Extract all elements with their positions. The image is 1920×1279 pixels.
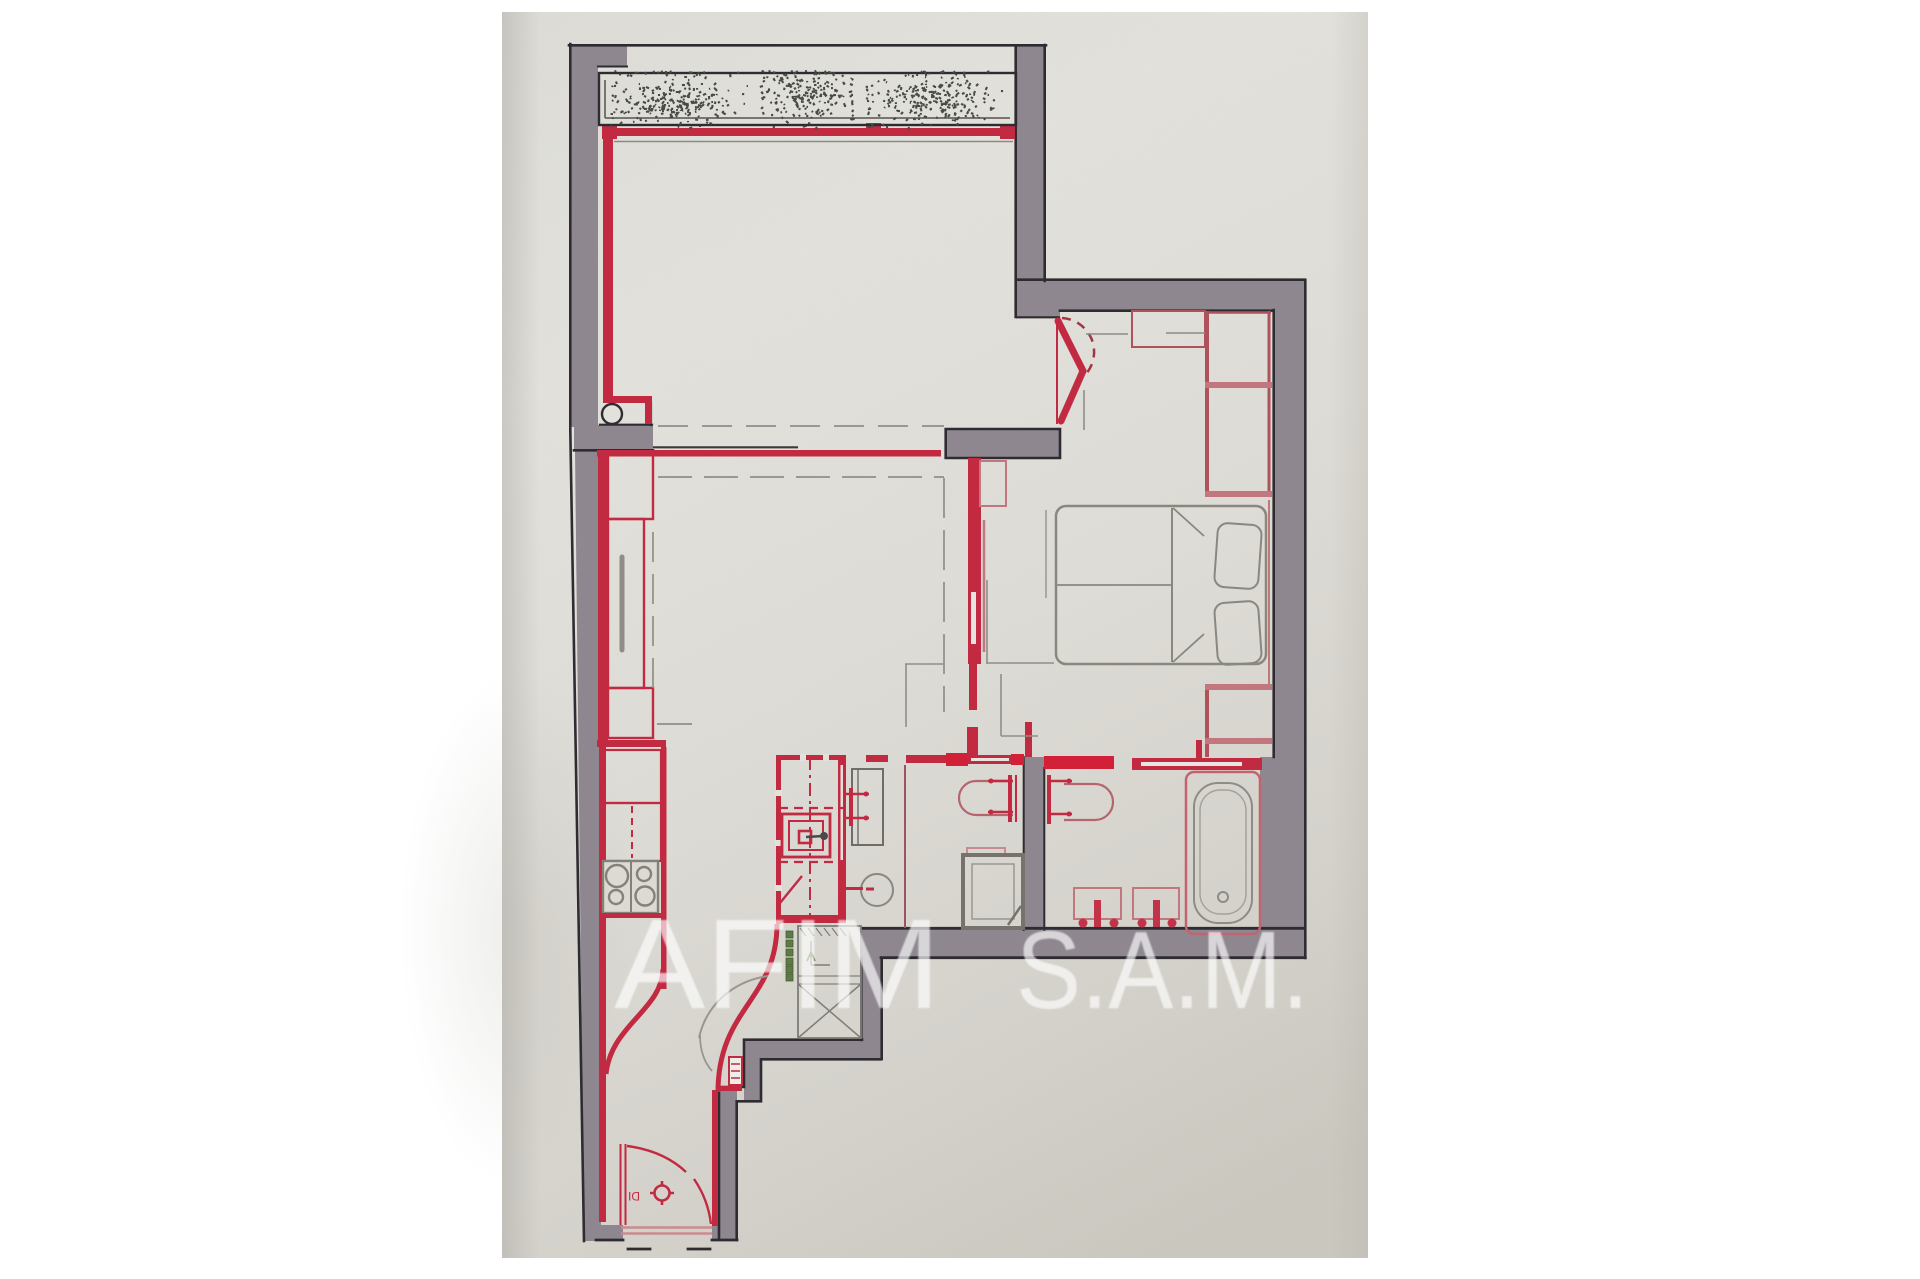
- svg-text:S.A.M.: S.A.M.: [1016, 909, 1309, 1032]
- svg-text:DI: DI: [628, 1189, 640, 1203]
- svg-text:AFIM: AFIM: [614, 893, 941, 1036]
